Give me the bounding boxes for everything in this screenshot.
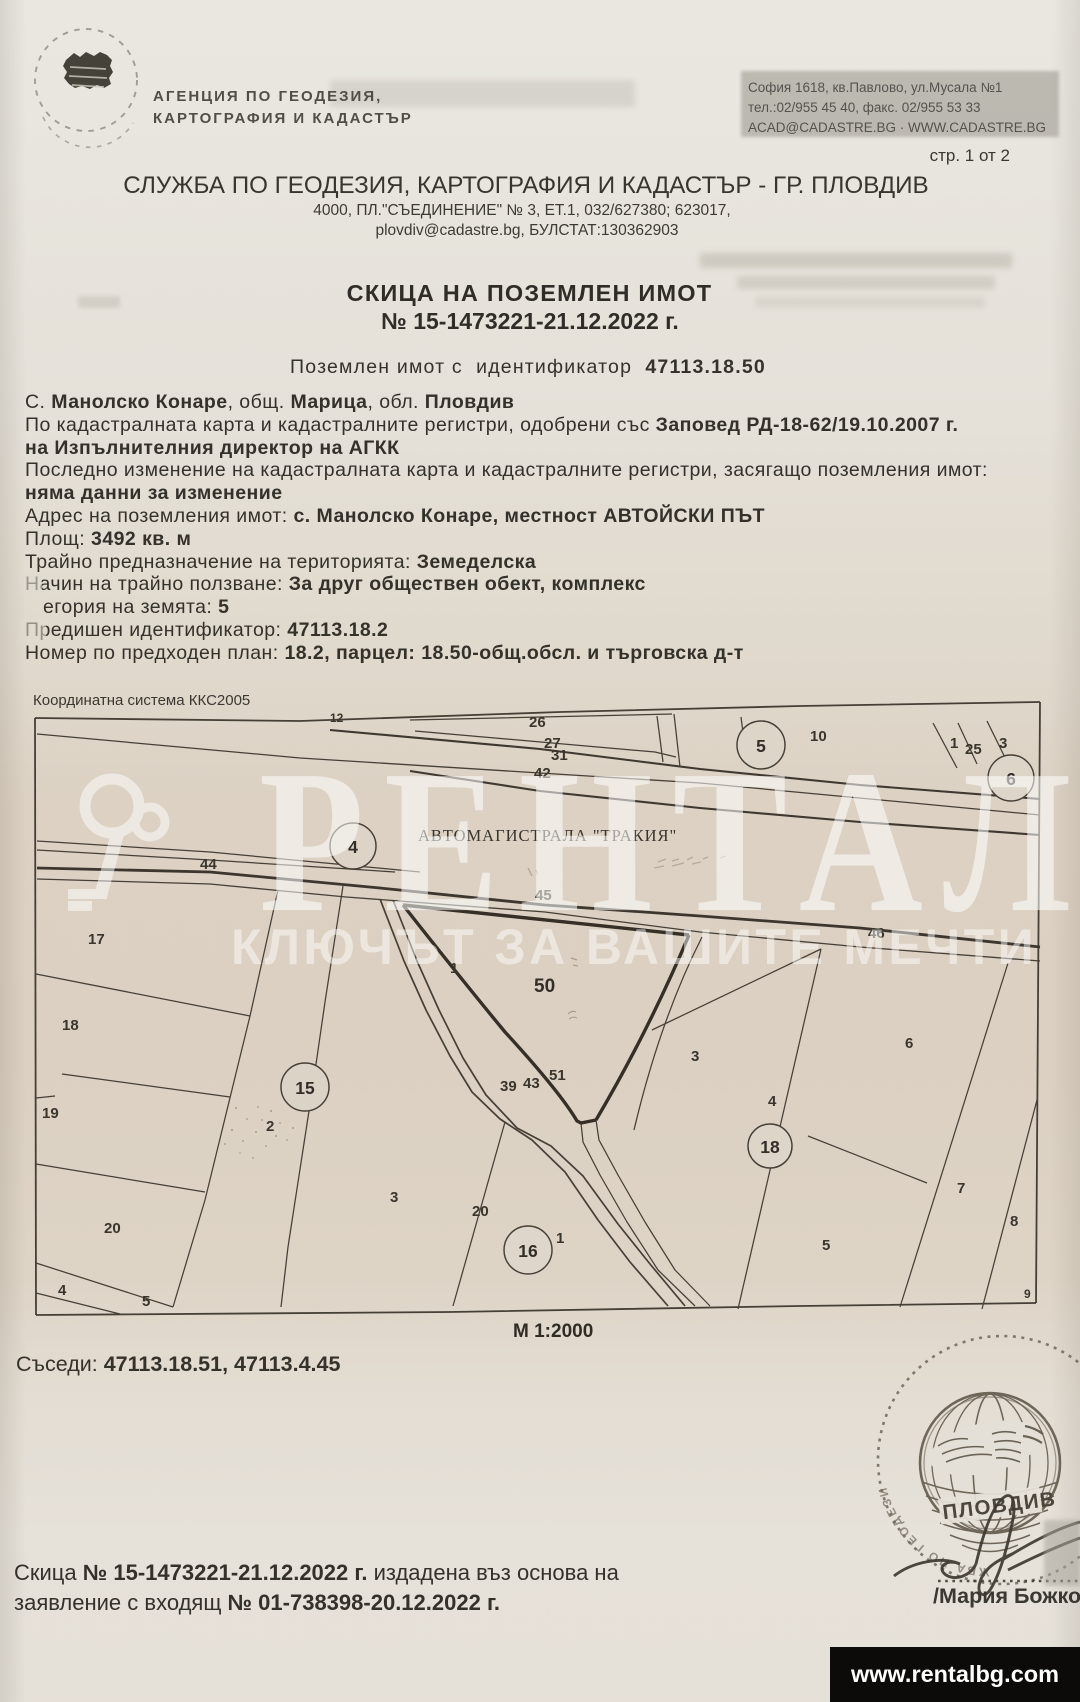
svg-text:7: 7 (957, 1180, 965, 1197)
svg-text:19: 19 (42, 1105, 59, 1122)
svg-text:39: 39 (500, 1078, 517, 1095)
svg-text:1: 1 (556, 1230, 564, 1247)
svg-text:2: 2 (266, 1118, 274, 1135)
svg-text:18: 18 (760, 1137, 780, 1157)
svg-text:8: 8 (1010, 1213, 1018, 1230)
svg-text:18: 18 (62, 1017, 79, 1034)
svg-text:51: 51 (549, 1067, 566, 1084)
svg-text:20: 20 (472, 1203, 489, 1220)
svg-text:3: 3 (390, 1189, 398, 1206)
svg-text:5: 5 (142, 1293, 150, 1310)
svg-text:15: 15 (295, 1078, 315, 1098)
svg-text:4: 4 (58, 1282, 67, 1299)
svg-text:20: 20 (104, 1220, 121, 1237)
svg-text:16: 16 (518, 1241, 538, 1261)
svg-text:6: 6 (905, 1035, 913, 1052)
svg-text:9: 9 (1024, 1287, 1031, 1301)
svg-text:3: 3 (691, 1048, 699, 1065)
svg-text:4: 4 (768, 1093, 777, 1110)
svg-text:5: 5 (822, 1237, 830, 1254)
svg-text:М 1:2000: М 1:2000 (513, 1321, 593, 1342)
svg-text:12: 12 (330, 711, 344, 725)
svg-text:43: 43 (523, 1075, 540, 1092)
